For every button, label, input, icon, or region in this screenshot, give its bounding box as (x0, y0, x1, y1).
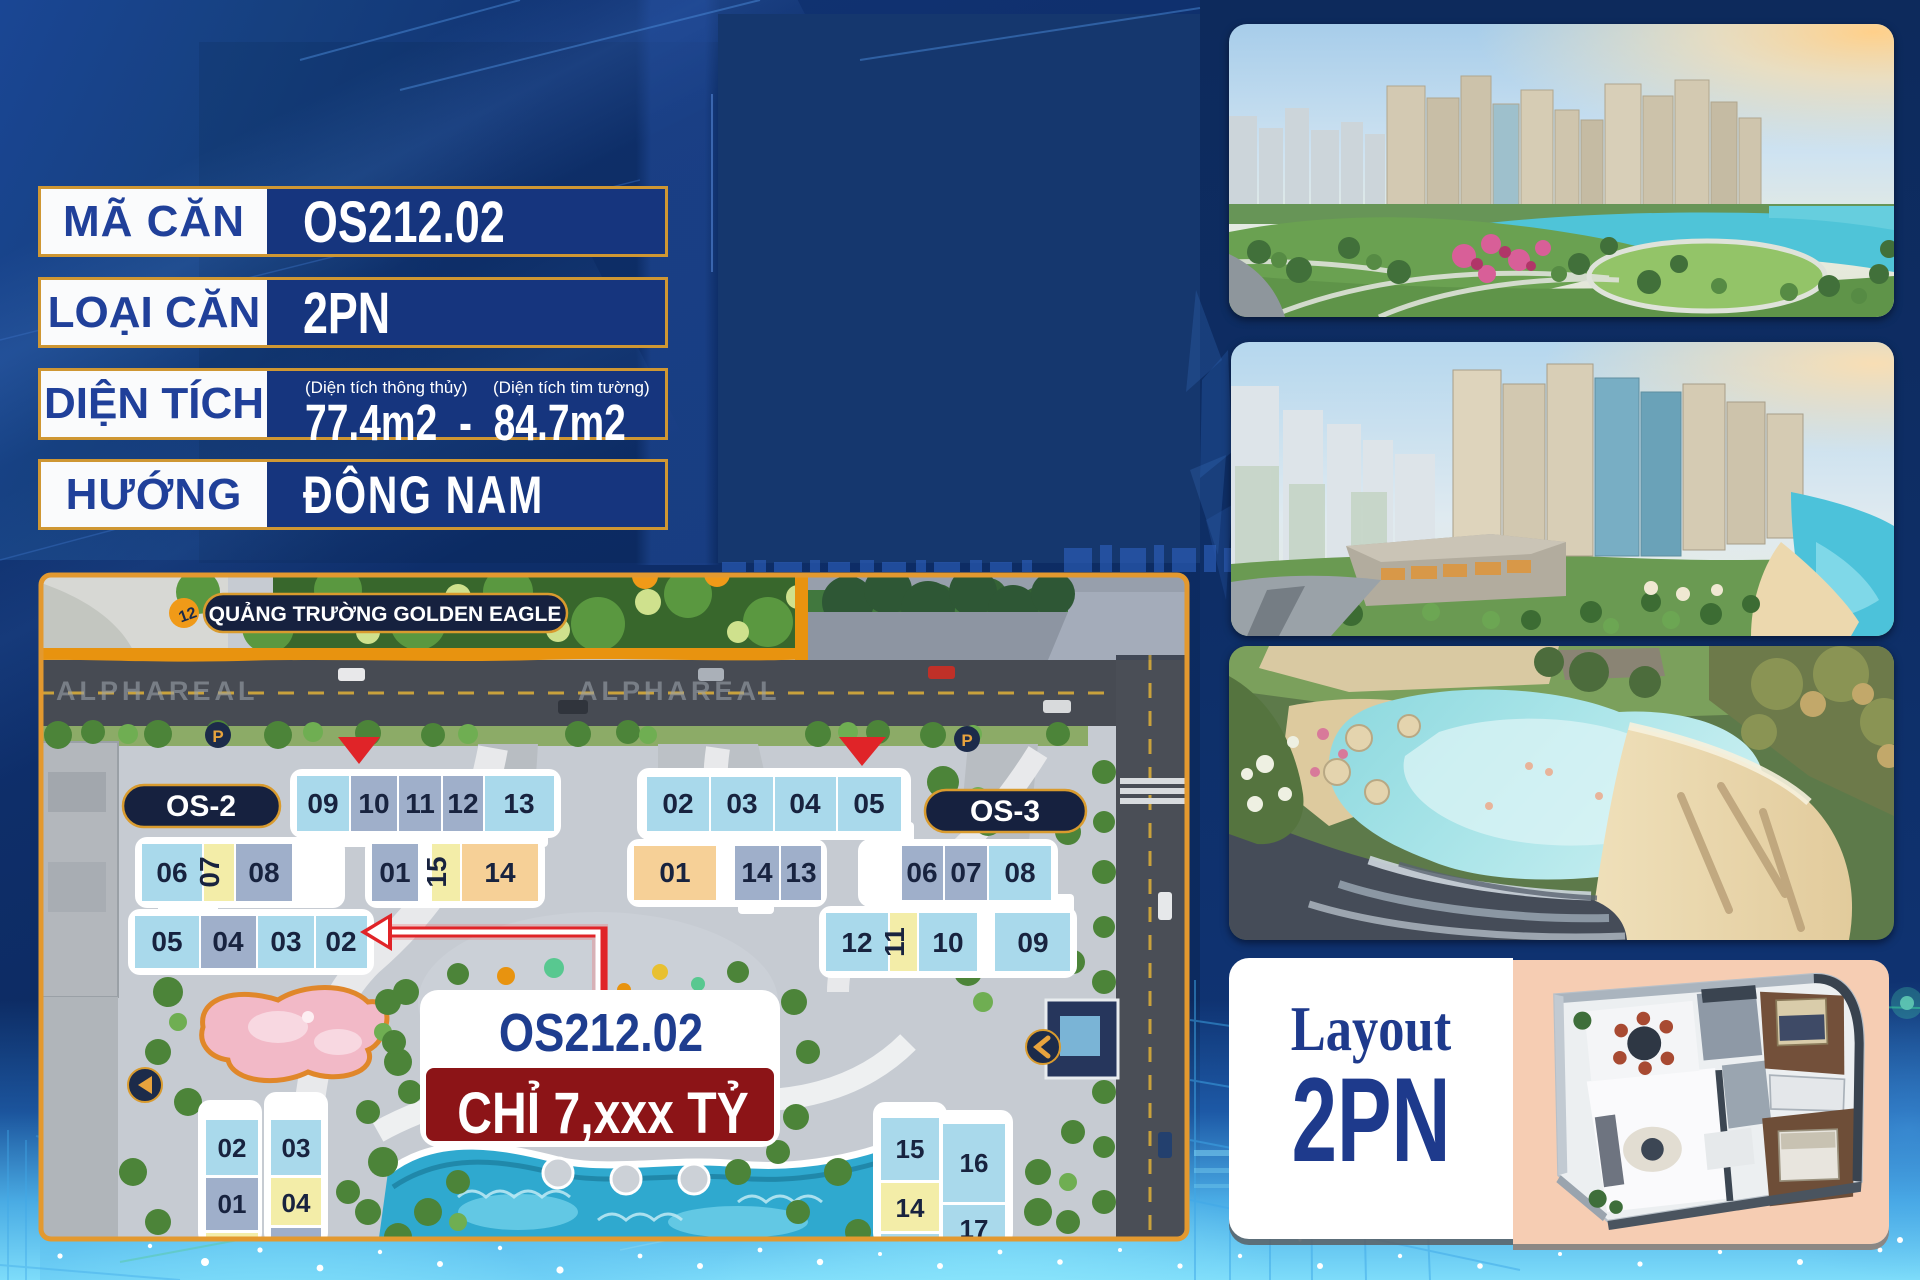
svg-text:11: 11 (405, 788, 435, 819)
svg-text:13: 13 (785, 857, 816, 888)
svg-text:OS-2: OS-2 (166, 790, 236, 823)
svg-text:P: P (961, 731, 972, 750)
svg-text:P: P (212, 727, 223, 746)
svg-text:03: 03 (270, 926, 301, 957)
svg-text:16: 16 (960, 1148, 989, 1178)
svg-text:03: 03 (726, 788, 757, 819)
svg-text:02: 02 (325, 926, 356, 957)
svg-text:04: 04 (212, 926, 244, 957)
svg-text:15: 15 (421, 856, 452, 887)
svg-text:09: 09 (1017, 927, 1048, 958)
svg-text:ALPHAREAL: ALPHAREAL (578, 676, 781, 706)
svg-text:12: 12 (447, 788, 478, 819)
svg-text:14: 14 (741, 857, 773, 888)
svg-text:05: 05 (151, 926, 182, 957)
svg-text:14: 14 (896, 1193, 925, 1223)
svg-text:QUẢNG TRƯỜNG GOLDEN EAGLE: QUẢNG TRƯỜNG GOLDEN EAGLE (209, 602, 562, 626)
svg-text:05: 05 (853, 788, 884, 819)
svg-text:11: 11 (879, 927, 910, 957)
svg-text:04: 04 (789, 788, 821, 819)
svg-text:06: 06 (906, 857, 937, 888)
svg-text:CHỈ 7,xxx TỶ: CHỈ 7,xxx TỶ (457, 1081, 749, 1146)
svg-text:01: 01 (218, 1189, 247, 1219)
svg-text:03: 03 (282, 1133, 311, 1163)
svg-text:07: 07 (950, 857, 981, 888)
svg-text:10: 10 (358, 788, 389, 819)
svg-text:14: 14 (484, 857, 516, 888)
svg-text:09: 09 (307, 788, 338, 819)
svg-text:15: 15 (896, 1134, 925, 1164)
svg-text:OS-3: OS-3 (970, 795, 1040, 828)
svg-text:ALPHAREAL: ALPHAREAL (56, 676, 259, 706)
svg-text:OS212.02: OS212.02 (499, 1002, 703, 1063)
svg-text:10: 10 (932, 927, 963, 958)
svg-text:02: 02 (218, 1133, 247, 1163)
svg-text:08: 08 (1004, 857, 1035, 888)
svg-text:08: 08 (248, 857, 279, 888)
svg-text:04: 04 (282, 1188, 311, 1218)
svg-text:02: 02 (662, 788, 693, 819)
svg-text:01: 01 (379, 857, 410, 888)
svg-text:07: 07 (194, 856, 225, 887)
svg-text:12: 12 (841, 927, 872, 958)
svg-text:01: 01 (659, 857, 690, 888)
svg-text:06: 06 (156, 857, 187, 888)
svg-text:13: 13 (503, 788, 534, 819)
